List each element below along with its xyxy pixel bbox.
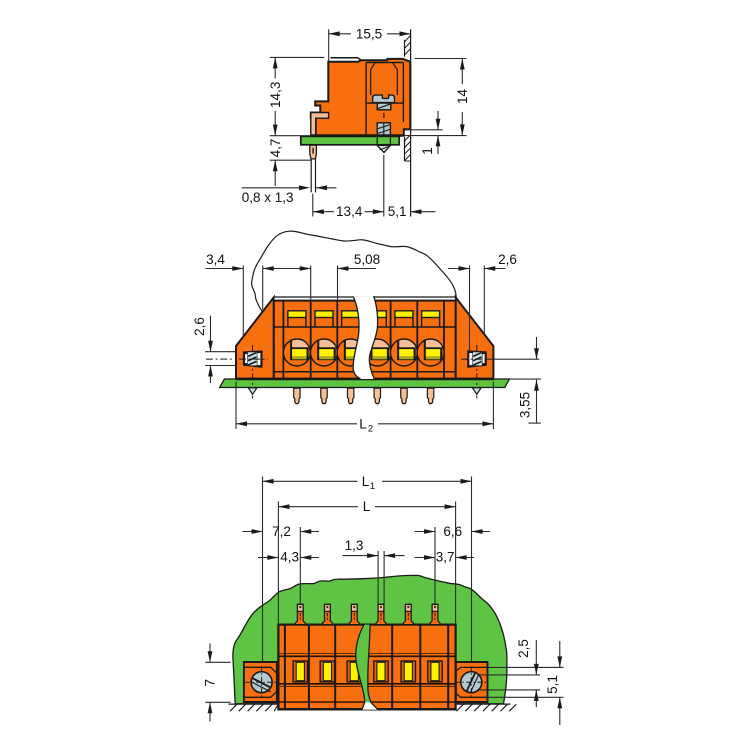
svg-text:L: L <box>362 474 370 489</box>
svg-text:2,6: 2,6 <box>498 252 517 267</box>
svg-text:L: L <box>359 416 367 431</box>
svg-text:14: 14 <box>455 89 470 105</box>
svg-text:5,1: 5,1 <box>388 204 407 219</box>
svg-text:15,5: 15,5 <box>356 27 382 42</box>
svg-text:1: 1 <box>420 147 435 155</box>
svg-text:4,3: 4,3 <box>280 550 299 565</box>
svg-text:4,7: 4,7 <box>268 139 283 158</box>
svg-text:1,3: 1,3 <box>345 538 364 553</box>
svg-text:3,7: 3,7 <box>436 550 455 565</box>
svg-text:5,08: 5,08 <box>354 252 380 267</box>
svg-text:13,4: 13,4 <box>336 204 363 219</box>
svg-text:1: 1 <box>370 481 375 492</box>
svg-text:7: 7 <box>203 679 218 687</box>
svg-text:5,1: 5,1 <box>545 675 560 694</box>
svg-text:2: 2 <box>368 423 373 434</box>
svg-text:14,3: 14,3 <box>268 82 283 108</box>
svg-text:2,6: 2,6 <box>192 317 207 336</box>
svg-text:6,6: 6,6 <box>443 524 462 539</box>
svg-text:7,2: 7,2 <box>272 524 291 539</box>
svg-text:L: L <box>363 499 371 514</box>
svg-text:3,55: 3,55 <box>518 392 533 418</box>
svg-text:2,5: 2,5 <box>516 639 531 658</box>
svg-text:3,4: 3,4 <box>206 252 225 267</box>
svg-text:0,8 x 1,3: 0,8 x 1,3 <box>242 190 294 205</box>
